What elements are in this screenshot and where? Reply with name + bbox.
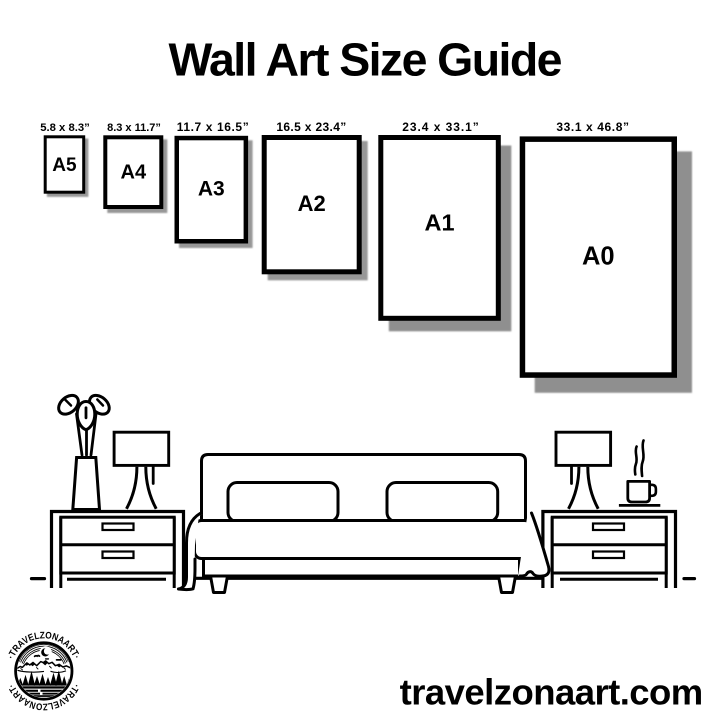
svg-text:A2: A2 [298,191,326,216]
svg-text:A1: A1 [424,209,454,235]
svg-text:11.7 x 16.5”: 11.7 x 16.5” [177,120,250,134]
svg-text:A4: A4 [121,162,147,184]
svg-text:8.3 x 11.7”: 8.3 x 11.7” [107,122,161,134]
svg-text:travelzonaart.com: travelzonaart.com [400,672,703,713]
svg-text:Wall Art Size Guide: Wall Art Size Guide [168,34,561,86]
svg-text:23.4 x 33.1”: 23.4 x 33.1” [402,120,479,134]
svg-text:33.1 x 46.8”: 33.1 x 46.8” [556,120,629,134]
svg-text:A5: A5 [52,155,77,176]
svg-text:16.5 x 23.4”: 16.5 x 23.4” [276,120,346,134]
svg-text:A0: A0 [582,243,615,271]
svg-text:5.8 x 8.3”: 5.8 x 8.3” [40,122,90,134]
svg-text:A3: A3 [198,177,225,200]
